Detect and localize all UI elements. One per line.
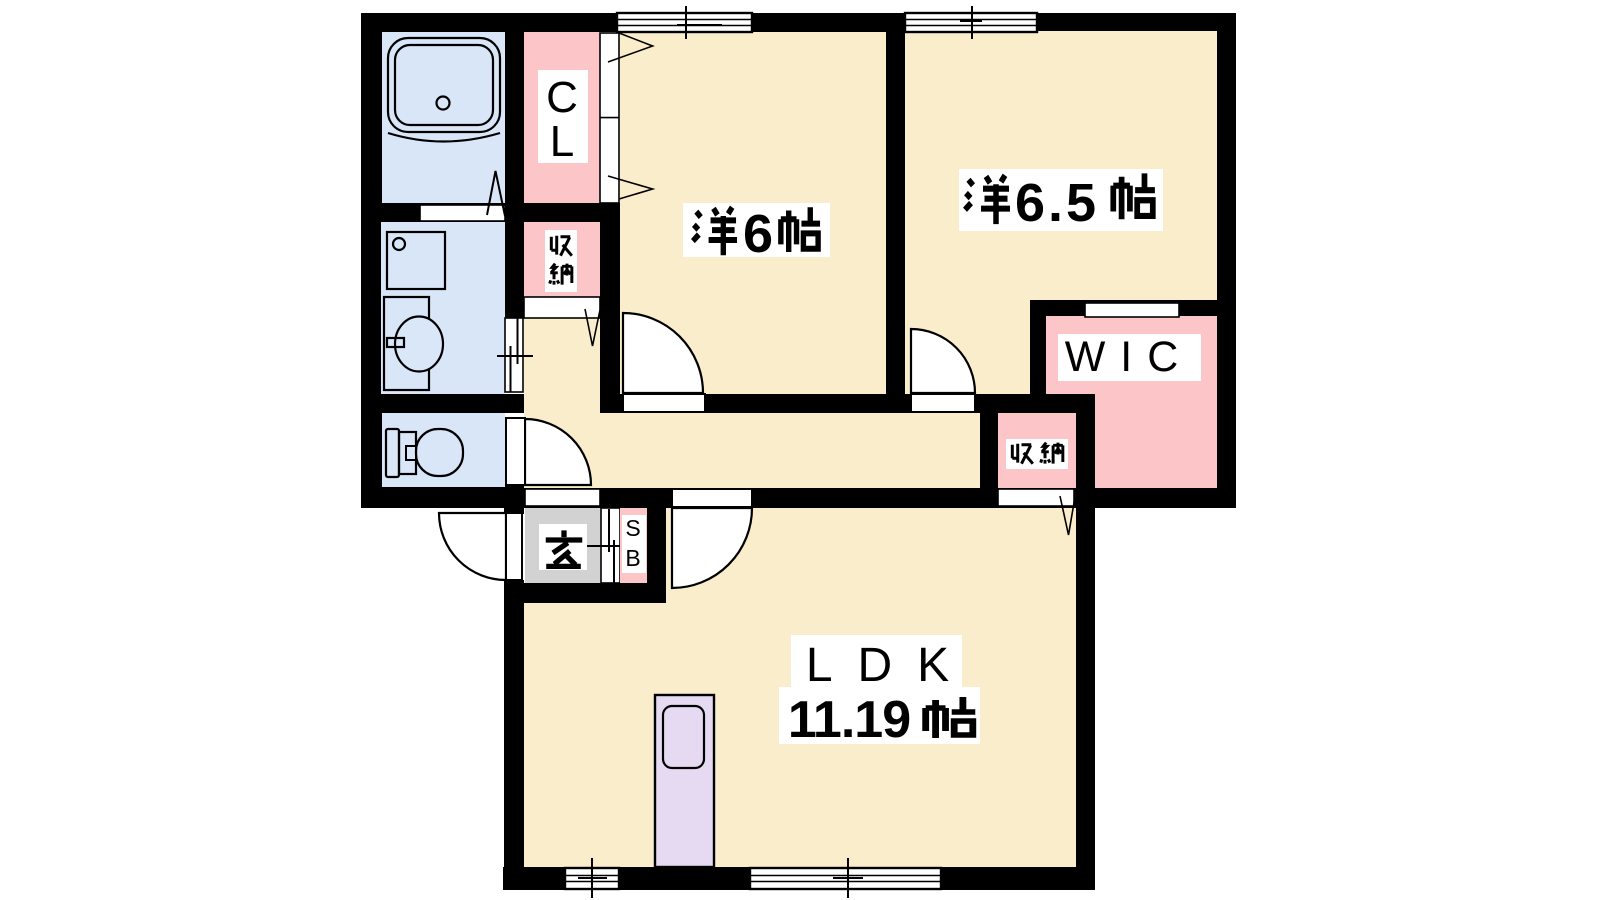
svg-text:11.19: 11.19 (788, 691, 910, 749)
svg-text:6: 6 (743, 204, 773, 264)
svg-text:B: B (625, 545, 640, 571)
svg-text:L: L (550, 117, 574, 166)
svg-text:LDK: LDK (806, 639, 974, 692)
svg-text:C: C (546, 73, 578, 122)
svg-text:S: S (625, 515, 640, 541)
svg-text:WIC: WIC (1065, 333, 1194, 381)
svg-text:6.5: 6.5 (1015, 173, 1099, 233)
